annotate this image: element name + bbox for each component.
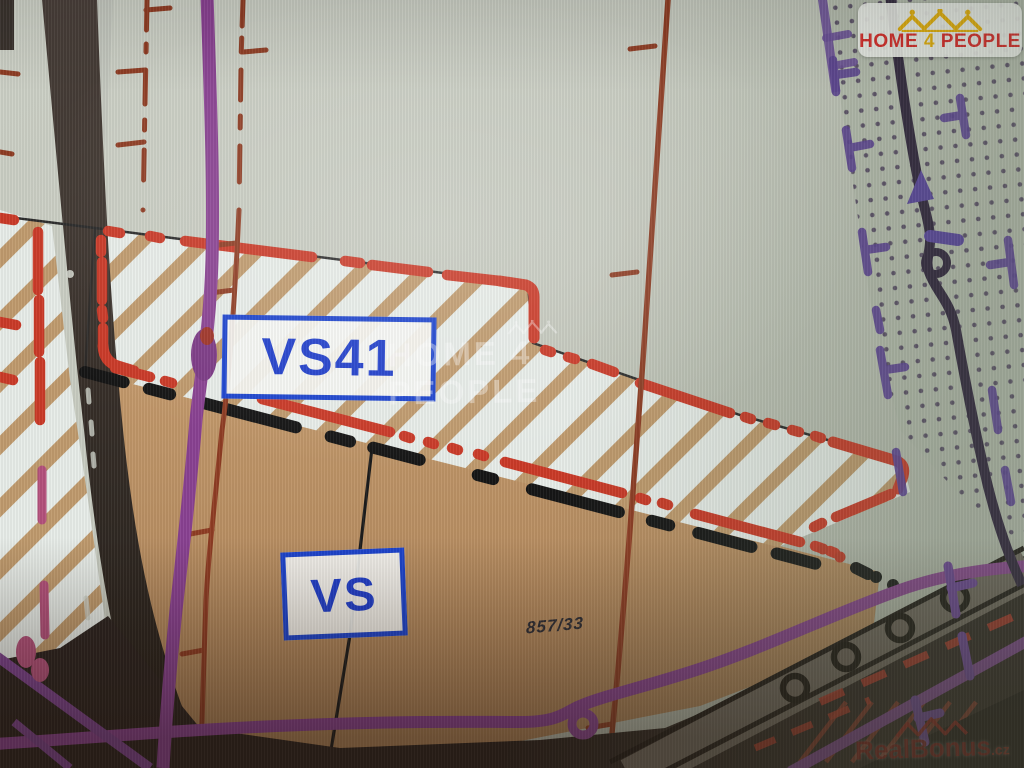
logo-word-people: PEOPLE	[941, 31, 1021, 52]
zone-label-vs41: VS41	[221, 315, 436, 402]
brand-logo: HOME 4 PEOPLE	[858, 3, 1022, 57]
watermark-realbonus-name: RealBonus	[855, 731, 992, 766]
zone-label-vs-text: VS	[310, 565, 379, 623]
logo-word-home: HOME	[859, 31, 918, 52]
logo-word-four: 4	[924, 31, 935, 52]
zone-label-vs41-text: VS41	[261, 327, 397, 389]
watermark-realbonus-tld: .cz	[991, 741, 1010, 758]
zone-label-vs: VS	[280, 547, 408, 640]
zoning-map-photo: VS41 VS 857/33 HOME 4 PEOPLE HOME 4 PEOP…	[0, 0, 1024, 768]
watermark-realbonus: RealBonus.cz	[841, 707, 1023, 768]
map-graphics	[0, 0, 1024, 768]
homes-icon	[892, 9, 988, 32]
